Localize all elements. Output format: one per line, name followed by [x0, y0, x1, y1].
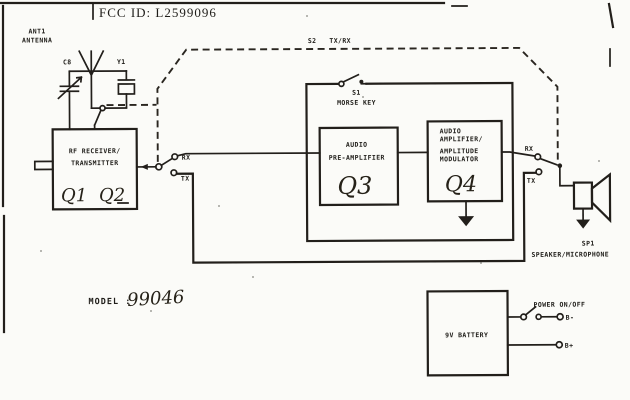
model-number-handwritten: 99046	[127, 287, 185, 311]
antenna-ref-label: ANT1	[28, 27, 45, 35]
battery-label: 9V BATTERY	[445, 331, 488, 339]
crystal-symbol	[105, 71, 134, 108]
schematic-diagram: FCC ID: L2599096 ANT1 ANTENNA C8 Y1	[0, 0, 630, 400]
y1-label: Y1	[117, 58, 126, 66]
q4-handwritten: Q4	[445, 172, 477, 197]
speaker-icon	[560, 167, 610, 220]
s1-ref-label: S1	[352, 89, 361, 97]
q3-handwritten: Q3	[337, 172, 372, 200]
speaker-label: SPEAKER/MICROPHONE	[531, 250, 609, 258]
fcc-id-text: FCC ID: L2599096	[99, 5, 217, 20]
amp-line2: AMPLIFIER/	[440, 135, 483, 143]
amplifier-box: AUDIO AMPLIFIER/ AMPLITUDE MODULATOR Q4	[428, 121, 502, 201]
q1-handwritten: Q1	[61, 185, 87, 206]
left-switch-tx-label: TX	[181, 175, 190, 183]
battery-positive-label: B+	[565, 342, 574, 350]
model-label: MODEL :	[89, 297, 132, 307]
preamp-line2: PRE-AMPLIFIER	[329, 154, 385, 162]
preamp-line1: AUDIO	[346, 141, 368, 149]
c8-label: C8	[63, 58, 72, 66]
right-switch-tx-label: TX	[527, 177, 536, 185]
variable-capacitor-symbol	[58, 71, 126, 129]
right-switch-rx-label: RX	[525, 145, 534, 153]
power-onoff-label: POWER ON/OFF	[534, 301, 586, 309]
rf-audio-wire	[137, 164, 156, 170]
battery-negative-terminal-icon	[557, 314, 563, 320]
rf-receiver-transmitter-box: RF RECEIVER/ TRANSMITTER Q1 Q2	[35, 129, 137, 210]
rx-audio-wire	[178, 153, 320, 156]
s2-ref-label: S2	[308, 37, 317, 45]
rf-box-line2: TRANSMITTER	[71, 159, 118, 167]
rf-box-line1: RF RECEIVER/	[69, 147, 121, 155]
amp-line3: AMPLITUDE	[440, 147, 479, 155]
antenna-icon	[79, 51, 103, 108]
left-txrx-switch	[156, 154, 178, 176]
amp-line1: AUDIO	[440, 127, 462, 135]
battery-positive-terminal-icon	[556, 342, 562, 348]
battery-box: 9V BATTERY	[427, 291, 507, 375]
speaker-ref-label: SP1	[582, 240, 595, 248]
ground-symbol-speaker	[576, 209, 590, 229]
amp-line4: MODULATOR	[440, 155, 479, 163]
battery-negative-label: B-	[566, 314, 575, 322]
preamp-box: AUDIO PRE-AMPLIFIER Q3	[320, 128, 398, 205]
s2-label: TX/RX	[329, 37, 351, 45]
antenna-switch	[92, 106, 106, 130]
ground-symbol-amplifier	[458, 201, 474, 226]
s1-label: MORSE KEY	[337, 99, 376, 107]
antenna-label: ANTENNA	[22, 36, 52, 44]
scanned-schematic-page: { "scan": { "fcc_id": "FCC ID: L2599096"…	[0, 0, 630, 400]
